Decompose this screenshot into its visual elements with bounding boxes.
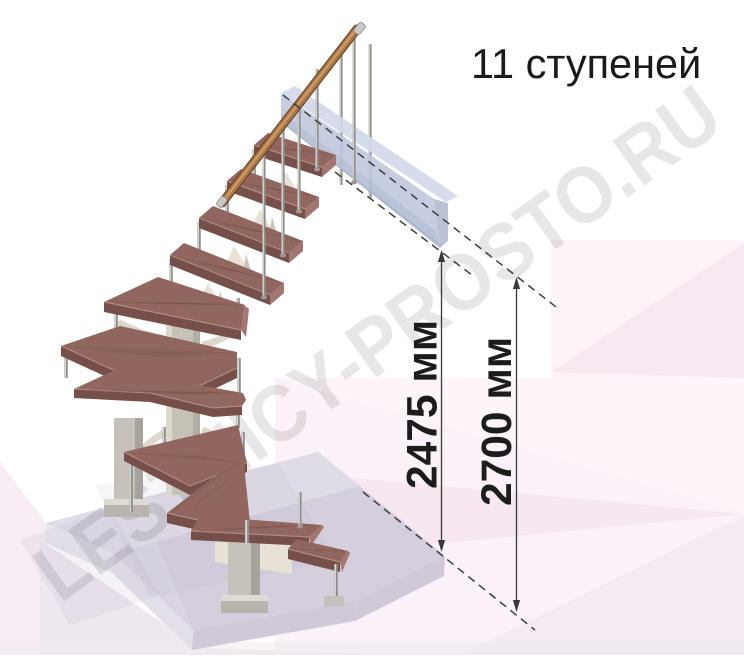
svg-text:2475 мм: 2475 мм	[400, 320, 447, 489]
svg-text:11 ступеней: 11 ступеней	[471, 40, 701, 87]
svg-text:2700 мм: 2700 мм	[474, 337, 521, 506]
